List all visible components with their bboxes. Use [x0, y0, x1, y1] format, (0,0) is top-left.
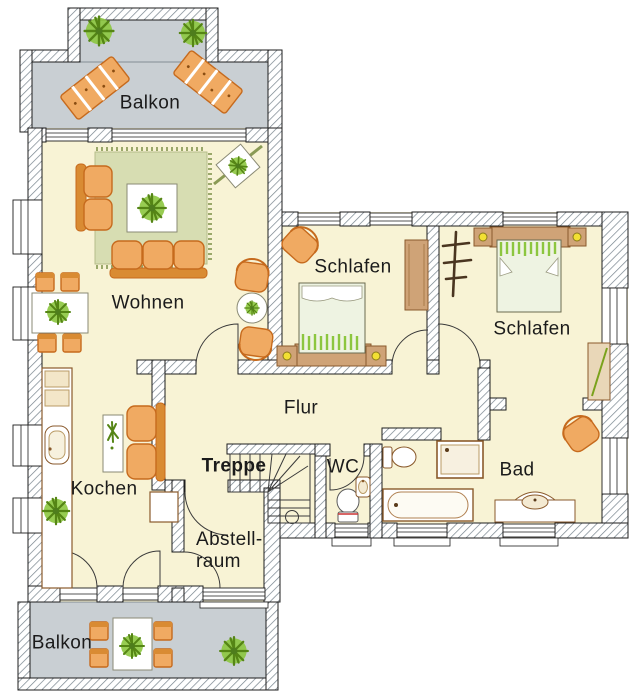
shelf-icon — [588, 343, 610, 400]
room-label-wc: WC — [327, 458, 359, 477]
three-seat-sofa-icon — [110, 241, 207, 278]
toilet-icon — [383, 447, 416, 468]
two-seat-sofa-icon — [76, 164, 112, 231]
cart-icon — [150, 492, 178, 522]
cabinet-icon — [45, 390, 69, 406]
shower-icon — [437, 441, 483, 478]
room-label-schlafen-left: Schlafen — [314, 258, 391, 277]
room-label-balkon-bottom: Balkon — [32, 634, 93, 653]
room-label-abstellraum-line1: Abstell- — [196, 529, 263, 551]
room-label-schlafen-right: Schlafen — [493, 320, 570, 339]
room-label-abstellraum-line2: raum — [196, 551, 263, 573]
wardrobe-icon — [405, 240, 428, 310]
bathtub-icon — [383, 489, 473, 521]
room-label-bad: Bad — [499, 461, 534, 480]
room-label-kochen: Kochen — [71, 480, 138, 499]
cooktop-icon — [45, 371, 69, 387]
floor-plan-drawing — [0, 0, 640, 699]
room-label-flur: Flur — [284, 399, 318, 418]
room-label-balkon-top: Balkon — [120, 94, 181, 113]
floor-plan: Balkon Wohnen Schlafen Schlafen Flur Tre… — [0, 0, 640, 699]
hand-basin-icon — [356, 477, 370, 497]
room-label-treppe: Treppe — [202, 457, 267, 476]
room-label-wohnen: Wohnen — [112, 294, 185, 313]
shelf-icon — [103, 415, 123, 472]
balcony-top-floor — [32, 20, 268, 130]
sink-icon — [45, 426, 69, 464]
coffee-table-icon — [127, 184, 177, 232]
room-label-abstellraum: Abstell- raum — [196, 529, 263, 573]
